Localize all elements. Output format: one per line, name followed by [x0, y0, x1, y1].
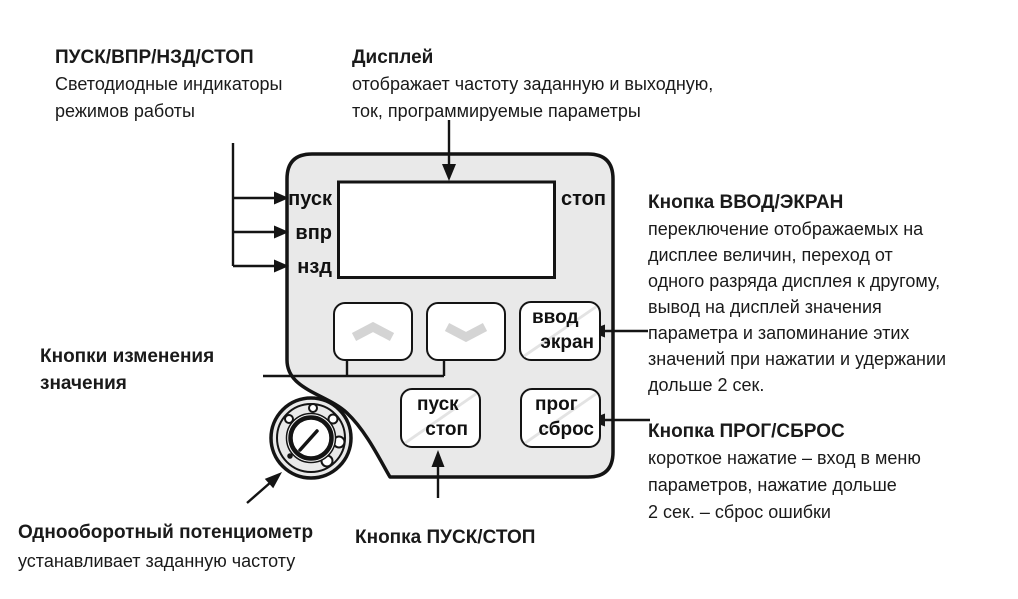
annotation-potentiometer-title: Однооборотный потенциометр — [18, 518, 313, 547]
prog-reset-button-bottom-label: сброс — [538, 419, 594, 441]
led-callout-bracket — [233, 143, 275, 266]
annotation-start-stop: Кнопка ПУСК/СТОП — [355, 524, 535, 551]
annotation-potentiometer: Однооборотный потенциометр устанавливает… — [18, 518, 313, 576]
keypad-diagram: пуск впр нзд стоп ввод экран пуск стоп п… — [0, 0, 1018, 599]
annotation-prog-reset-title: Кнопка ПРОГ/СБРОС — [648, 418, 921, 445]
annotation-display-title: Дисплей — [352, 44, 713, 71]
up-button[interactable] — [333, 302, 413, 361]
start-stop-button-top-label: пуск — [407, 394, 459, 416]
enter-screen-button-bottom-label: экран — [540, 332, 594, 354]
indicator-label-reverse: нзд — [284, 256, 332, 279]
chevron-down-icon — [442, 322, 490, 342]
annotation-leds: ПУСК/ВПР/НЗД/СТОП Светодиодные индикатор… — [55, 44, 282, 125]
annotation-display: Дисплей отображает частоту заданную и вы… — [352, 44, 713, 125]
down-button[interactable] — [426, 302, 506, 361]
enter-screen-button-top-label: ввод — [526, 307, 579, 329]
potentiometer-callout-line — [247, 482, 271, 503]
prog-reset-button[interactable]: прог сброс — [520, 388, 601, 448]
enter-screen-button[interactable]: ввод экран — [519, 301, 601, 361]
indicator-label-start: пуск — [284, 188, 332, 211]
chevron-up-icon — [349, 322, 397, 342]
indicator-label-stop: стоп — [561, 188, 609, 211]
display-screen — [339, 182, 555, 278]
annotation-value-buttons: Кнопки изменения значения — [40, 343, 214, 397]
annotation-prog-reset: Кнопка ПРОГ/СБРОС короткое нажатие – вхо… — [648, 418, 921, 526]
potentiometer-screw-dot — [288, 454, 292, 458]
start-stop-button-bottom-label: стоп — [425, 419, 474, 441]
annotation-enter-screen-title: Кнопка ВВОД/ЭКРАН — [648, 190, 946, 216]
annotation-enter-screen: Кнопка ВВОД/ЭКРАН переключение отображае… — [648, 190, 946, 398]
start-stop-button[interactable]: пуск стоп — [400, 388, 481, 448]
potentiometer-screw-dot — [309, 404, 317, 412]
indicator-label-forward: впр — [284, 222, 332, 245]
prog-reset-button-top-label: прог — [527, 394, 578, 416]
annotation-leds-title: ПУСК/ВПР/НЗД/СТОП — [55, 44, 282, 71]
potentiometer[interactable] — [271, 398, 351, 478]
annotation-start-stop-title: Кнопка ПУСК/СТОП — [355, 524, 535, 551]
